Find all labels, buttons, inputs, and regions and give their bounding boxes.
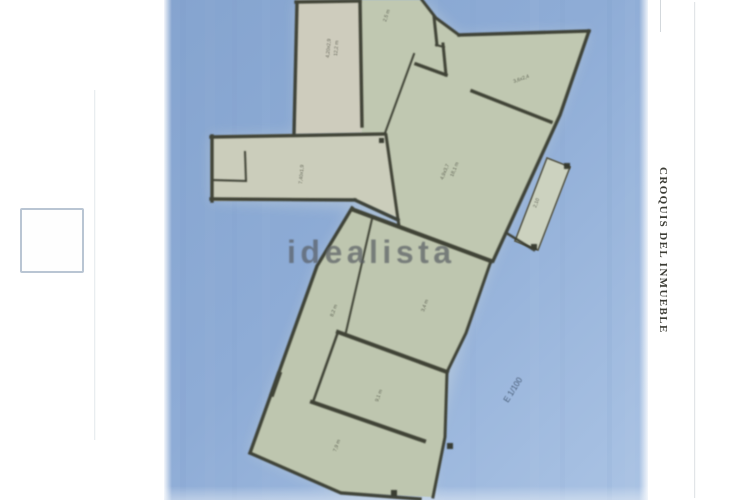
svg-text:CROQUIS DEL INMUEBLE: CROQUIS DEL INMUEBLE	[657, 167, 669, 334]
svg-text:idealista: idealista	[287, 234, 456, 270]
